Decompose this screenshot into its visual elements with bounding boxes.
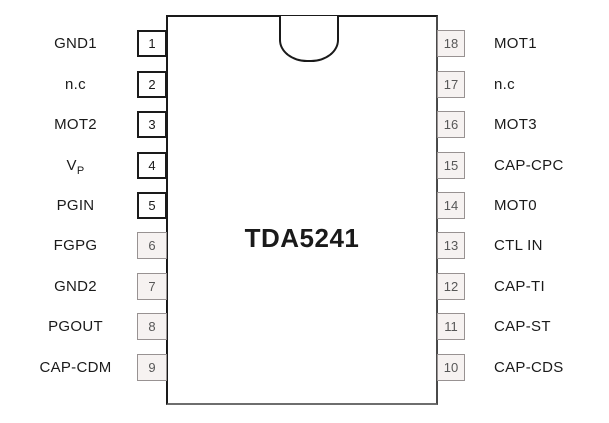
pin-row-left-1: GND1 1: [0, 30, 167, 57]
pin-15-label: CAP-CPC: [494, 157, 564, 174]
pin-row-left-9: CAP-CDM 9: [0, 354, 167, 381]
pin-row-left-8: PGOUT 8: [0, 313, 167, 340]
pin-row-left-6: FGPG 6: [0, 232, 167, 259]
pin-9-label: CAP-CDM: [0, 359, 137, 376]
pin-4-label: VP: [0, 157, 137, 174]
pin-row-right-14: 14 MOT0: [437, 192, 609, 219]
pin-17-number: 17: [437, 71, 465, 98]
pin-9-number: 9: [137, 354, 167, 381]
pin-row-left-5: PGIN 5: [0, 192, 167, 219]
chip-notch-icon: [279, 16, 339, 62]
pin-2-number: 2: [137, 71, 167, 98]
pin-15-number: 15: [437, 152, 465, 179]
pin-10-number: 10: [437, 354, 465, 381]
pinout-diagram: TDA5241 GND1 1 n.c 2 MOT2 3 VP 4 PGIN 5 …: [0, 0, 609, 423]
pin-8-label: PGOUT: [0, 318, 137, 335]
pin-row-right-11: 11 CAP-ST: [437, 313, 609, 340]
pin-8-number: 8: [137, 313, 167, 340]
pin-11-number: 11: [437, 313, 465, 340]
pin-18-number: 18: [437, 30, 465, 57]
pin-row-right-12: 12 CAP-TI: [437, 273, 609, 300]
pin-5-number: 5: [137, 192, 167, 219]
pin-row-right-10: 10 CAP-CDS: [437, 354, 609, 381]
pin-4-number: 4: [137, 152, 167, 179]
pin-row-right-17: 17 n.c: [437, 71, 609, 98]
pin-row-right-18: 18 MOT1: [437, 30, 609, 57]
pin-7-label: GND2: [0, 278, 137, 295]
pin-row-right-13: 13 CTL IN: [437, 232, 609, 259]
pin-14-number: 14: [437, 192, 465, 219]
pin-16-number: 16: [437, 111, 465, 138]
pin-10-label: CAP-CDS: [494, 359, 564, 376]
pin-row-right-15: 15 CAP-CPC: [437, 152, 609, 179]
pin-1-label: GND1: [0, 35, 137, 52]
pin-row-left-4: VP 4: [0, 152, 167, 179]
pin-4-label-subscript: P: [77, 165, 85, 177]
pin-row-left-3: MOT2 3: [0, 111, 167, 138]
pin-13-label: CTL IN: [494, 237, 543, 254]
pin-7-number: 7: [137, 273, 167, 300]
pin-13-number: 13: [437, 232, 465, 259]
pin-row-right-16: 16 MOT3: [437, 111, 609, 138]
chip-body: TDA5241: [166, 15, 438, 405]
pin-row-left-7: GND2 7: [0, 273, 167, 300]
pin-5-label: PGIN: [0, 197, 137, 214]
pin-17-label: n.c: [494, 76, 515, 93]
pin-6-label: FGPG: [0, 237, 137, 254]
pin-3-label: MOT2: [0, 116, 137, 133]
pin-12-number: 12: [437, 273, 465, 300]
pin-18-label: MOT1: [494, 35, 537, 52]
pin-16-label: MOT3: [494, 116, 537, 133]
pin-6-number: 6: [137, 232, 167, 259]
pin-12-label: CAP-TI: [494, 278, 545, 295]
pin-14-label: MOT0: [494, 197, 537, 214]
pin-2-label: n.c: [0, 76, 137, 93]
pin-1-number: 1: [137, 30, 167, 57]
chip-label: TDA5241: [168, 223, 436, 254]
pin-3-number: 3: [137, 111, 167, 138]
pin-row-left-2: n.c 2: [0, 71, 167, 98]
pin-11-label: CAP-ST: [494, 318, 551, 335]
